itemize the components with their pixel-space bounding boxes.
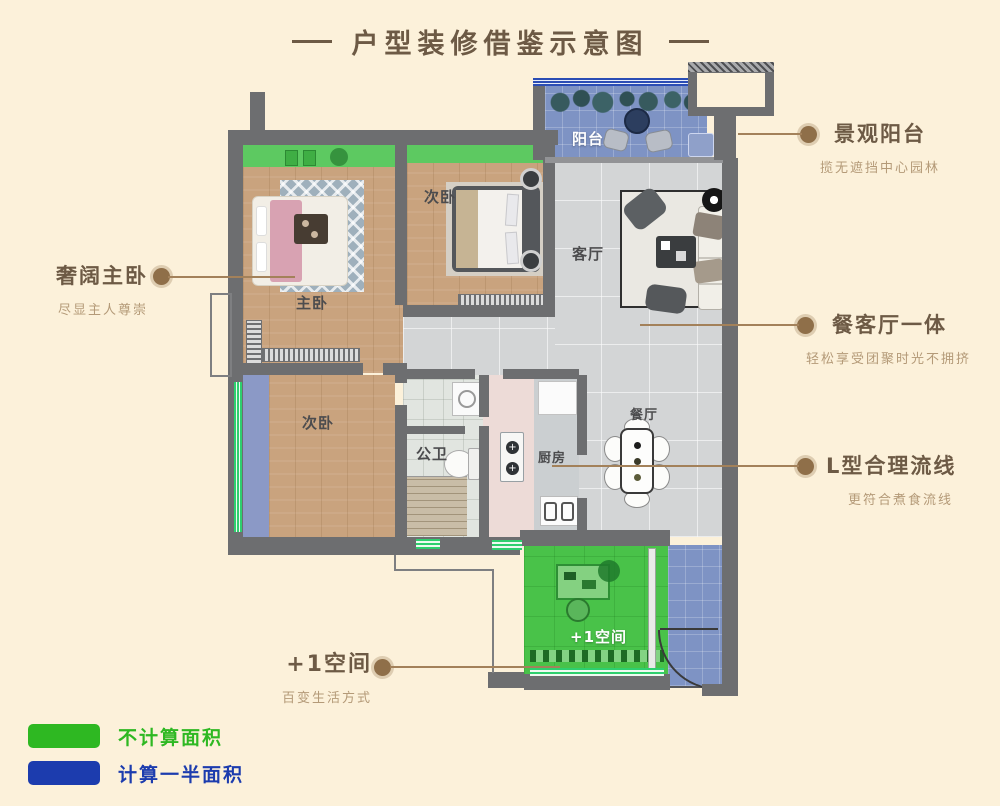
desk-item-1	[564, 572, 576, 580]
label-master: 主卧	[296, 292, 328, 313]
callout-kitchen-flow-title: L型合理流线	[826, 450, 956, 480]
tray-dish-2	[311, 231, 318, 238]
legend-blue-swatch	[28, 761, 100, 785]
wall-top-left-stub	[250, 92, 265, 134]
sink-basin-2	[561, 502, 574, 521]
wall-balcony-left	[533, 84, 545, 160]
dining-table-dish-1	[634, 442, 641, 449]
legend-green-label: 不计算面积	[118, 723, 223, 750]
label-living: 客厅	[572, 243, 604, 264]
wall-bath-divider	[403, 426, 465, 434]
kitchen-window-green	[492, 540, 522, 550]
wall-ac-connector	[714, 114, 736, 160]
callout-kitchen-flow-subtitle: 更符合煮食流线	[848, 489, 956, 508]
wall-bottom-left	[228, 537, 520, 555]
legend-row-no-area: 不计算面积	[28, 724, 244, 748]
label-bedroom-top: 次卧	[424, 186, 456, 207]
callout-balcony: 景观阳台 揽无遮挡中心园林	[820, 118, 940, 176]
bedroom-top-blanket	[456, 190, 478, 268]
outline-line-v2	[492, 569, 494, 673]
callout-balcony-title: 景观阳台	[834, 118, 940, 148]
wall-master-bottom-a	[243, 363, 363, 375]
wall-kitchen-dining-b	[577, 498, 587, 537]
dining-table-dish-3	[634, 474, 641, 481]
legend-blue-label: 计算一半面积	[118, 760, 244, 787]
washbasin-bowl	[458, 390, 476, 408]
stove-burner-1: +	[506, 441, 519, 454]
ac-platform-hatch	[688, 62, 774, 72]
table-item-2	[676, 251, 686, 261]
callout-master-subtitle: 尽显主人尊崇	[28, 299, 148, 318]
callout-living-dining-title: 餐客厅一体	[832, 309, 971, 339]
bay-cushion-2	[303, 150, 316, 166]
dining-table-dish-2	[634, 458, 641, 465]
label-dining: 餐厅	[630, 404, 658, 423]
callout-plus-space-subtitle: 百变生活方式	[250, 687, 372, 706]
ac-platform-interior	[697, 73, 765, 107]
balcony-mat	[688, 133, 714, 157]
living-coffee-table	[656, 236, 696, 268]
living-armchair-bottom	[644, 283, 687, 314]
master-pillow-1	[256, 206, 267, 236]
callout-kitchen-flow-dot	[797, 458, 814, 475]
floorplan-page: { "header": { "title": "户型装修借鉴示意图" }, "p…	[0, 0, 1000, 806]
master-pillow-2	[256, 242, 267, 272]
plus-space-chair	[566, 598, 590, 622]
table-item-1	[661, 241, 670, 250]
wall-bedroom2-bottom	[403, 305, 555, 317]
callout-master-title: 奢阔主卧	[28, 260, 148, 290]
master-bed-tray	[294, 214, 328, 244]
wall-bath-top-a	[403, 369, 475, 379]
wall-balcony-divider	[545, 157, 723, 163]
bathroom-washbasin	[452, 382, 482, 416]
tray-dish-1	[302, 220, 309, 227]
sofa-cushion-1	[692, 212, 726, 241]
page-title-text: 户型装修借鉴示意图	[352, 22, 649, 61]
wall-entry-block	[702, 684, 738, 696]
legend-row-half-area: 计算一半面积	[28, 761, 244, 785]
stove-burner-2: +	[506, 462, 519, 475]
sink-basin-1	[544, 502, 557, 521]
bedroom-top-bay-green	[407, 143, 543, 163]
wall-bedroom2-living	[543, 143, 555, 307]
label-balcony: 阳台	[572, 128, 604, 149]
callout-kitchen-flow: L型合理流线 更符合煮食流线	[826, 450, 956, 508]
bedroom-top-pillow-1	[505, 194, 519, 227]
wall-right	[722, 158, 738, 690]
sofa-cushion-2	[693, 258, 726, 284]
label-plus-space: +1空间	[570, 626, 627, 647]
legend: 不计算面积 计算一半面积	[28, 724, 244, 798]
wall-top	[228, 130, 558, 145]
label-bathroom: 公卫	[416, 443, 448, 464]
callout-balcony-dot	[800, 126, 817, 143]
balcony-plants	[548, 88, 700, 114]
callout-balcony-line	[738, 133, 802, 135]
wall-plus-block-left	[488, 672, 524, 688]
callout-living-dining-dot	[797, 317, 814, 334]
kitchen-fridge	[538, 381, 577, 415]
balcony-table	[624, 108, 650, 134]
bath-window-green	[416, 539, 440, 549]
wall-bath-top-b	[503, 369, 579, 379]
kitchen-stove: + +	[500, 432, 524, 482]
title-dash-right	[669, 40, 709, 43]
wall-bath-kitchen-b	[479, 426, 489, 540]
callout-living-dining-subtitle: 轻松享受团聚时光不拥挤	[806, 348, 971, 367]
bedroom-top-nightstand-1	[520, 168, 542, 190]
corridor-tile-floor	[403, 315, 555, 377]
callout-plus-space-title: +1空间	[250, 646, 372, 678]
title-dash-left	[292, 40, 332, 43]
callout-plus-space-dot	[374, 659, 391, 676]
bay-cushion-1	[285, 150, 298, 166]
bedroom-top-nightstand-2	[520, 250, 542, 272]
wall-bath-kitchen-a	[479, 375, 489, 417]
callout-master-line	[168, 276, 295, 278]
bedroom-bottom-bay-blue	[243, 375, 269, 540]
wall-master-bedroom2	[395, 143, 407, 305]
plus-space-sliding-door	[648, 548, 656, 674]
master-wardrobe-vertical	[246, 320, 262, 366]
callout-plus-space: +1空间 百变生活方式	[250, 646, 372, 706]
bedroom-bottom-window-green	[234, 382, 242, 532]
bedroom-top-pillow-2	[505, 232, 519, 265]
callout-kitchen-flow-line	[552, 465, 799, 467]
callout-living-dining: 餐客厅一体 轻松享受团聚时光不拥挤	[806, 309, 971, 367]
label-kitchen: 厨房	[538, 447, 566, 466]
plus-space-cabinet-strip	[530, 650, 664, 662]
outline-line-h1	[394, 569, 494, 571]
plus-space-plant	[598, 560, 620, 582]
balcony-window-blue	[533, 78, 709, 86]
wall-plus-bottom	[524, 674, 670, 690]
master-bay-window-green	[243, 143, 403, 167]
callout-balcony-subtitle: 揽无遮挡中心园林	[820, 157, 940, 176]
desk-item-2	[582, 580, 596, 589]
entry-door-leaf	[660, 628, 718, 630]
ac-outline-left	[210, 293, 232, 377]
wall-bottom-middle	[520, 530, 670, 546]
callout-master: 奢阔主卧 尽显主人尊崇	[28, 260, 148, 318]
bay-plant	[330, 148, 348, 166]
legend-green-swatch	[28, 724, 100, 748]
shower-slatted-floor	[405, 476, 467, 536]
dining-table	[620, 428, 654, 494]
callout-living-dining-line	[640, 324, 799, 326]
kitchen-sink	[540, 496, 578, 526]
plus-window-green	[530, 668, 664, 676]
page-title: 户型装修借鉴示意图	[0, 22, 1000, 61]
callout-plus-space-line	[390, 666, 560, 668]
label-bedroom-bottom: 次卧	[302, 412, 334, 433]
master-wardrobe-horizontal	[262, 348, 360, 362]
wall-kitchen-dining-a	[577, 375, 587, 455]
